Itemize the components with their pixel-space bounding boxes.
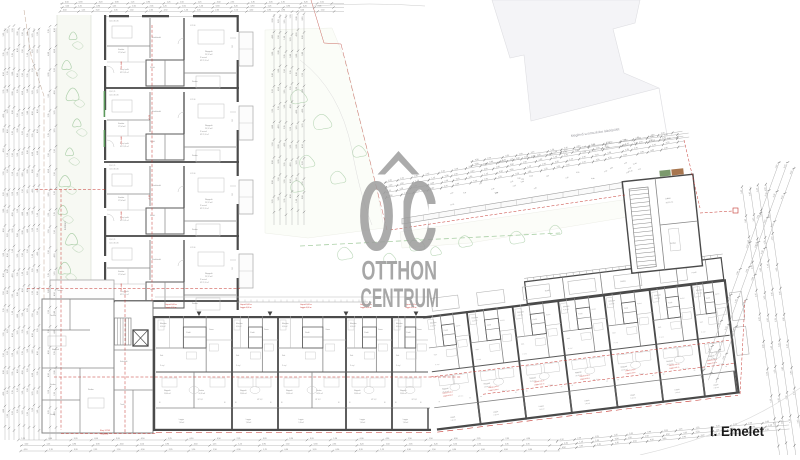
svg-text:3,20: 3,20 [37,90,39,94]
svg-text:0,90: 0,90 [17,292,19,296]
svg-text:4,50: 4,50 [32,152,34,156]
svg-text:2,35: 2,35 [231,2,235,4]
svg-text:1,50: 1,50 [54,272,56,276]
svg-text:4,50: 4,50 [296,33,298,37]
svg-text:3,20: 3,20 [74,438,78,440]
svg-text:0,90: 0,90 [3,209,5,213]
svg-text:2,35: 2,35 [48,213,50,217]
svg-text:1,50: 1,50 [278,35,280,39]
svg-text:Szoba: Szoba [192,155,199,157]
svg-text:3,20: 3,20 [683,432,687,434]
svg-text:4,50: 4,50 [22,288,24,292]
svg-text:2,35: 2,35 [37,371,39,375]
svg-text:4,10 m2: 4,10 m2 [236,326,242,328]
svg-text:3,20: 3,20 [54,111,56,115]
svg-text:2,35: 2,35 [7,52,9,56]
svg-text:2,35: 2,35 [22,151,24,155]
svg-text:4,50: 4,50 [290,179,292,183]
svg-text:2,35: 2,35 [284,199,286,203]
svg-text:4,10 m2: 4,10 m2 [350,326,356,328]
svg-text:4,50: 4,50 [17,369,19,373]
svg-text:4,50: 4,50 [564,443,568,445]
svg-text:7,40 m2: 7,40 m2 [179,422,185,424]
svg-text:MT 14,2: MT 14,2 [371,399,376,401]
svg-text:0,90: 0,90 [48,289,50,293]
svg-text:Loggia: Loggia [403,419,408,421]
svg-text:1,50: 1,50 [192,449,196,451]
svg-text:14,20 m2: 14,20 m2 [199,393,206,395]
svg-text:0,90: 0,90 [281,10,285,12]
svg-text:Közlekedő: Közlekedő [152,111,161,113]
svg-text:3,20: 3,20 [17,153,19,157]
svg-text:Nappali: Nappali [286,390,293,392]
svg-text:3,20: 3,20 [310,438,314,440]
svg-text:Előszoba: Előszoba [396,323,403,325]
svg-text:90: 90 [384,402,386,404]
svg-text:0,90: 0,90 [765,421,769,423]
svg-text:0,90: 0,90 [7,290,9,294]
svg-text:1,50: 1,50 [321,10,325,12]
svg-text:17,54 m2: 17,54 m2 [118,52,126,54]
svg-text:0,90: 0,90 [146,2,150,4]
svg-text:2,35: 2,35 [17,273,19,277]
svg-text:0,90: 0,90 [272,160,274,164]
svg-text:2,35: 2,35 [48,94,50,98]
svg-text:25,40 m2: 25,40 m2 [354,393,361,395]
svg-text:0,90: 0,90 [278,51,280,55]
svg-text:0,90: 0,90 [115,2,119,4]
svg-text:4,50: 4,50 [296,110,298,114]
svg-text:4,50: 4,50 [385,438,389,440]
svg-text:Loggia: Loggia [179,419,184,421]
svg-text:90: 90 [349,402,351,404]
svg-text:MT 25,12 m2: MT 25,12 m2 [200,60,209,62]
svg-text:MT 25,12 m2: MT 25,12 m2 [200,208,209,210]
svg-text:0,90: 0,90 [302,195,304,199]
svg-text:3,20: 3,20 [263,438,267,440]
svg-text:1,50: 1,50 [521,179,524,181]
svg-text:4,50: 4,50 [17,48,19,52]
svg-text:1,25: 1,25 [380,449,384,451]
svg-text:Fürdő: Fürdő [406,332,410,334]
svg-text:3,20: 3,20 [116,438,120,440]
svg-text:OTTHON: OTTHON [362,256,438,286]
svg-text:3,20: 3,20 [300,10,304,12]
svg-text:1,50: 1,50 [22,73,24,77]
svg-text:3,20: 3,20 [96,10,100,12]
svg-text:2,35: 2,35 [49,449,53,451]
svg-text:2,35: 2,35 [22,112,24,116]
svg-text:4,50: 4,50 [3,409,5,413]
svg-text:Szoba: Szoba [118,123,125,125]
svg-text:1,50: 1,50 [184,10,188,12]
svg-text:Közl.: Közl. [236,355,240,357]
svg-text:MT 14,2: MT 14,2 [315,399,320,401]
svg-text:1,50: 1,50 [7,30,9,34]
svg-text:3,20: 3,20 [278,19,280,23]
svg-text:7,40 m2: 7,40 m2 [403,422,409,424]
svg-text:4,50: 4,50 [272,125,274,129]
svg-text:1,50: 1,50 [386,444,390,446]
svg-text:2,35: 2,35 [232,119,234,122]
svg-text:0,90: 0,90 [452,449,456,451]
svg-text:1,50: 1,50 [12,249,14,253]
svg-text:Terasz: Terasz [57,289,63,292]
svg-text:1,25: 1,25 [21,438,25,440]
svg-text:3,20: 3,20 [32,392,34,396]
svg-text:1,50: 1,50 [333,438,337,440]
svg-text:4,50: 4,50 [54,254,56,258]
svg-text:2,35: 2,35 [27,74,29,78]
svg-text:3,20: 3,20 [359,449,363,451]
svg-text:Közl.: Közl. [396,355,400,357]
svg-text:+2,95 +0,00: +2,95 +0,00 [121,136,123,145]
svg-text:1,50: 1,50 [22,189,24,193]
svg-text:2,35: 2,35 [150,6,154,8]
svg-text:90: 90 [159,402,161,404]
svg-text:2,35: 2,35 [284,55,286,59]
svg-text:4,50: 4,50 [576,172,579,174]
svg-text:0,90: 0,90 [272,180,274,184]
svg-text:0,90: 0,90 [22,231,24,235]
svg-text:0,90: 0,90 [48,193,50,197]
svg-text:0,90: 0,90 [3,370,5,374]
svg-text:Tároló: Tároló [120,404,125,406]
svg-text:0,90: 0,90 [528,449,532,451]
svg-text:I. Emelet: I. Emelet [710,423,764,439]
svg-text:3,20: 3,20 [17,254,19,258]
svg-text:4,50: 4,50 [24,449,28,451]
svg-text:Klszj: 91T03: Klszj: 91T03 [100,430,110,432]
svg-text:2,35: 2,35 [215,10,219,12]
svg-text:1,50: 1,50 [22,32,24,36]
svg-text:1,50: 1,50 [37,391,39,395]
svg-text:1,50: 1,50 [7,169,9,173]
svg-text:MT 15,81 m2: MT 15,81 m2 [120,294,129,296]
svg-text:2,35: 2,35 [318,6,322,8]
svg-text:Előszoba: Előszoba [236,323,243,325]
svg-text:2,35: 2,35 [48,114,50,118]
svg-text:Fürdő: Fürdő [150,141,155,143]
svg-text:1,50: 1,50 [429,438,433,440]
svg-text:2,35: 2,35 [48,273,50,277]
svg-text:2,35: 2,35 [37,228,39,232]
svg-text:3,20: 3,20 [453,444,457,446]
svg-text:4,50: 4,50 [3,228,5,232]
svg-text:2,35: 2,35 [237,438,241,440]
svg-text:1,50 2,35 0,90: 1,50 2,35 0,90 [109,95,119,97]
svg-text:1,50: 1,50 [3,291,5,295]
svg-text:Loggia: Loggia [246,419,251,421]
svg-text:2,35: 2,35 [526,444,530,446]
svg-text:1,50: 1,50 [180,2,184,4]
svg-text:3,20: 3,20 [290,145,292,149]
svg-text:0,90: 0,90 [216,6,220,8]
svg-text:0,90: 0,90 [54,371,56,375]
svg-text:1,25: 1,25 [198,2,202,4]
svg-text:2,35: 2,35 [22,329,24,333]
svg-text:Loggia 0,00 m: Loggia 0,00 m [300,307,312,309]
svg-text:4,50: 4,50 [17,314,19,318]
svg-text:2,35: 2,35 [505,438,509,440]
svg-text:1,25: 1,25 [163,6,167,8]
svg-text:0,90: 0,90 [290,54,292,58]
svg-text:1,25: 1,25 [595,436,599,438]
svg-text:3,20: 3,20 [74,449,78,451]
svg-text:4,50: 4,50 [54,330,56,334]
svg-text:1,25: 1,25 [768,425,772,427]
svg-text:4,50: 4,50 [290,163,292,167]
svg-text:Lépcső 0,00 m: Lépcső 0,00 m [165,304,177,306]
svg-text:1,50: 1,50 [278,178,280,182]
svg-text:4,10 m2: 4,10 m2 [396,326,402,328]
svg-text:Fürdő: Fürdő [305,332,309,334]
svg-text:4,50: 4,50 [3,392,5,396]
svg-text:P. vinyl: P. vinyl [236,365,241,367]
svg-text:2,35: 2,35 [284,90,286,94]
svg-text:1,50: 1,50 [302,182,304,186]
svg-text:2,35: 2,35 [232,45,234,48]
svg-text:CENTRUM: CENTRUM [361,283,440,313]
svg-text:2,35: 2,35 [7,210,9,214]
svg-text:3,20: 3,20 [12,411,14,415]
svg-text:1,50 2,35 0,90: 1,50 2,35 0,90 [109,243,119,245]
svg-text:7,40 m2: 7,40 m2 [298,422,304,424]
svg-text:2,35: 2,35 [615,442,619,444]
svg-text:1,50: 1,50 [296,199,298,203]
svg-text:P. vinyl: P. vinyl [282,365,287,367]
svg-text:3,20: 3,20 [7,351,9,355]
svg-text:90: 90 [395,402,397,404]
svg-text:4,50: 4,50 [666,434,670,436]
svg-text:4,50: 4,50 [37,252,39,256]
svg-text:2,35: 2,35 [765,429,769,431]
svg-text:0,90: 0,90 [32,169,34,173]
svg-text:17,54 m2: 17,54 m2 [118,274,126,276]
svg-text:3,20: 3,20 [27,32,29,36]
svg-text:0,90: 0,90 [278,69,280,73]
svg-text:4,50: 4,50 [526,438,530,440]
svg-text:1,50: 1,50 [645,435,649,437]
svg-text:25,12 m2: 25,12 m2 [205,128,213,130]
svg-text:4,50: 4,50 [27,288,29,292]
svg-text:3,20: 3,20 [32,91,34,95]
svg-text:1,50: 1,50 [284,180,286,184]
svg-text:3,20: 3,20 [434,444,438,446]
svg-text:Loggia: Loggia [298,419,303,421]
svg-text:Előszoba: Előszoba [160,323,167,325]
svg-text:3,20: 3,20 [303,6,307,8]
svg-text:2,35: 2,35 [17,89,19,93]
svg-text:4,50: 4,50 [120,444,124,446]
svg-text:2,35: 2,35 [477,438,481,440]
svg-text:3,20: 3,20 [32,49,34,53]
svg-text:7,40 m2: 7,40 m2 [360,422,366,424]
svg-text:Lépcső 0,00 m: Lépcső 0,00 m [300,304,312,306]
svg-text:0,90: 0,90 [286,6,290,8]
svg-text:1,25: 1,25 [263,449,267,451]
svg-text:4,50: 4,50 [650,439,654,441]
svg-text:4,50: 4,50 [284,143,286,147]
svg-text:0,90: 0,90 [454,438,458,440]
svg-text:4,50: 4,50 [7,129,9,133]
svg-text:Közlekedő: Közlekedő [152,37,161,39]
svg-text:2,35: 2,35 [7,309,9,313]
svg-text:1,50: 1,50 [3,172,5,176]
svg-text:4,50: 4,50 [562,447,566,449]
svg-text:2,35: 2,35 [232,267,234,270]
svg-text:1,50: 1,50 [199,6,203,8]
svg-text:1,25: 1,25 [168,438,172,440]
svg-text:Közl.: Közl. [160,355,164,357]
svg-text:3,20: 3,20 [27,349,29,353]
svg-text:0,90: 0,90 [336,449,340,451]
svg-text:1,50: 1,50 [12,172,14,176]
svg-text:Közl.: Közl. [350,355,354,357]
svg-text:0,90: 0,90 [284,449,288,451]
svg-text:2,35: 2,35 [48,133,50,137]
svg-text:2,35: 2,35 [37,328,39,332]
svg-text:Loggia: Loggia [360,419,365,421]
svg-text:3,20: 3,20 [360,444,364,446]
svg-text:0,90: 0,90 [37,189,39,193]
svg-text:1,50: 1,50 [37,410,39,414]
svg-text:0,90: 0,90 [79,2,83,4]
svg-text:90: 90 [235,402,237,404]
svg-text:MT 14,2: MT 14,2 [198,399,203,401]
svg-text:2,35: 2,35 [278,106,280,110]
svg-text:2,35: 2,35 [7,71,9,75]
svg-text:2,35: 2,35 [54,351,56,355]
svg-text:3,20: 3,20 [27,308,29,312]
svg-text:4,50: 4,50 [22,212,24,216]
svg-text:4,50: 4,50 [48,373,50,377]
svg-text:Fürdő: Fürdő [186,332,190,334]
svg-text:1,50: 1,50 [3,353,5,357]
svg-text:1,50: 1,50 [22,313,24,317]
svg-text:4,50: 4,50 [22,91,24,95]
svg-text:1,50: 1,50 [290,15,292,19]
svg-text:0,90: 0,90 [17,233,19,237]
svg-text:0,90: 0,90 [647,431,651,433]
svg-text:14 15 90: 14 15 90 [190,247,196,249]
svg-text:0,90: 0,90 [314,444,318,446]
svg-text:3,20 1,25: 3,20 1,25 [109,239,115,241]
svg-text:2,35: 2,35 [27,412,29,416]
svg-text:1,50: 1,50 [48,153,50,157]
svg-text:3,20: 3,20 [296,126,298,130]
svg-text:0,90: 0,90 [360,438,364,440]
svg-text:MT 14,2: MT 14,2 [257,399,262,401]
svg-text:2,35: 2,35 [409,444,413,446]
svg-text:3,20: 3,20 [234,6,238,8]
svg-text:4,50: 4,50 [48,52,50,56]
svg-text:0,90: 0,90 [302,17,304,21]
svg-text:4,50: 4,50 [54,412,56,416]
svg-text:4,50: 4,50 [54,292,56,296]
svg-text:0,90: 0,90 [296,72,298,76]
svg-text:2,35: 2,35 [22,351,24,355]
svg-text:MT 25,12 m2: MT 25,12 m2 [200,134,209,136]
svg-text:3,20: 3,20 [3,253,5,257]
svg-text:1,50: 1,50 [22,253,24,257]
svg-text:4,50: 4,50 [32,111,34,115]
svg-text:turistaút: turistaút [64,221,67,230]
svg-text:3,20: 3,20 [17,192,19,196]
svg-text:2,35: 2,35 [463,192,466,194]
svg-text:3,20: 3,20 [54,129,56,133]
svg-text:0,90: 0,90 [165,444,169,446]
svg-text:3,20: 3,20 [313,449,317,451]
svg-text:3,20: 3,20 [27,271,29,275]
svg-text:Szoba: Szoba [192,303,199,305]
svg-text:3,20: 3,20 [296,87,298,91]
svg-text:Fürdő: Fürdő [364,332,368,334]
svg-text:Loggia 0,00 m: Loggia 0,00 m [165,307,177,309]
svg-text:4,50: 4,50 [194,444,198,446]
svg-text:1,25: 1,25 [78,6,82,8]
svg-text:Loggia 0,00 m: Loggia 0,00 m [240,307,252,309]
svg-text:3,20: 3,20 [12,353,14,357]
svg-text:3,20: 3,20 [32,228,34,232]
svg-text:0,90: 0,90 [17,129,19,133]
svg-text:4,50: 4,50 [17,73,19,77]
svg-text:P. vinyl: P. vinyl [350,365,355,367]
svg-text:1,25: 1,25 [47,444,51,446]
svg-text:+2,95 +0,00: +2,95 +0,00 [121,283,123,292]
svg-text:4,50: 4,50 [141,438,145,440]
svg-text:25,12 m2: 25,12 m2 [205,276,213,278]
svg-text:Nappali: Nappali [205,273,213,275]
svg-text:4,50: 4,50 [278,87,280,91]
svg-text:2,35: 2,35 [269,2,273,4]
svg-text:25,40 m2: 25,40 m2 [240,393,247,395]
svg-text:1,25: 1,25 [696,427,700,429]
svg-text:+2,95 +0,00: +2,95 +0,00 [121,61,123,70]
svg-text:Nappali: Nappali [400,390,407,392]
svg-text:90: 90 [270,402,272,404]
svg-text:0,90: 0,90 [7,89,9,93]
svg-text:Szoba: Szoba [199,390,205,392]
svg-text:+2,95 +0,00: +2,95 +0,00 [121,211,123,220]
svg-text:4,10 m2: 4,10 m2 [282,326,288,328]
svg-text:1,50: 1,50 [27,388,29,392]
svg-text:4,50: 4,50 [140,444,144,446]
svg-text:3,20: 3,20 [27,331,29,335]
svg-text:4,50: 4,50 [3,273,5,277]
svg-text:1,25: 1,25 [579,441,583,443]
svg-text:0,90: 0,90 [267,10,271,12]
svg-text:4,50: 4,50 [54,28,56,32]
svg-text:3,20: 3,20 [22,411,24,415]
svg-text:4,50: 4,50 [164,10,168,12]
svg-text:4,50: 4,50 [37,351,39,355]
svg-text:2,35: 2,35 [12,53,14,57]
svg-text:3,20: 3,20 [17,209,19,213]
svg-text:2,35: 2,35 [12,372,14,376]
svg-text:1,50: 1,50 [17,113,19,117]
svg-text:Nappali: Nappali [205,199,213,201]
svg-text:1,25: 1,25 [238,444,242,446]
svg-text:3,20: 3,20 [290,127,292,131]
svg-text:0,90: 0,90 [3,129,5,133]
svg-text:2,35: 2,35 [302,73,304,77]
svg-text:25,40 m2: 25,40 m2 [286,393,293,395]
svg-text:0,90: 0,90 [591,178,594,180]
svg-text:2,35: 2,35 [54,212,56,216]
svg-text:0,90: 0,90 [237,449,241,451]
svg-text:1,25: 1,25 [268,6,272,8]
